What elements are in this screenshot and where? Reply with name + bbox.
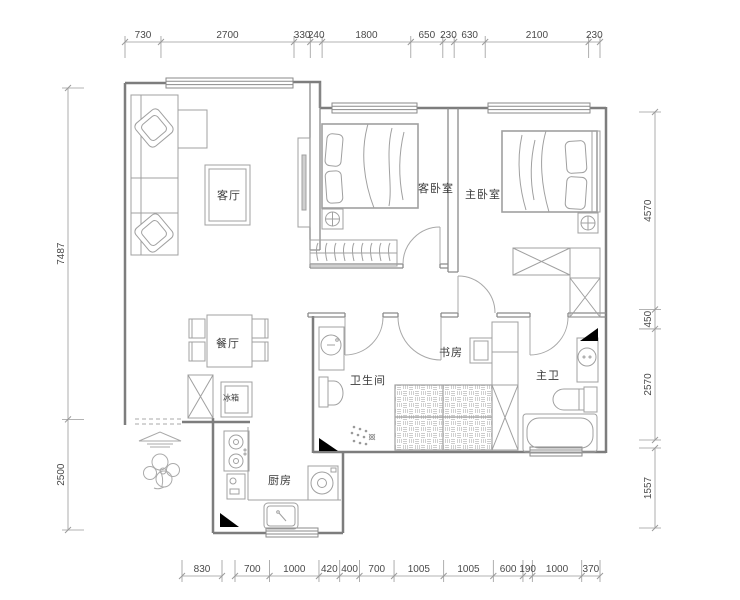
svg-text:230: 230 [440,30,457,41]
svg-text:730: 730 [135,30,152,41]
svg-text:2100: 2100 [526,30,549,41]
room-label-guest-bedroom: 客卧室 [418,180,454,196]
svg-text:230: 230 [586,30,603,41]
master-nightstand [578,213,598,233]
interior-walls [308,83,606,317]
washing-machine [308,466,338,500]
kitchen-sink [264,503,298,529]
master-bed [502,131,600,212]
entry-opening [135,419,182,424]
bathroom-door [345,317,383,355]
bathroom-vanity [319,327,344,370]
svg-text:1000: 1000 [283,564,306,575]
plant [144,454,180,489]
master-wardrobe [513,248,600,317]
svg-text:700: 700 [368,564,385,575]
guest-bed [322,124,418,208]
entry-canopy [139,432,181,447]
master-bath-door [530,317,568,355]
svg-text:630: 630 [461,30,478,41]
room-label-living-room: 客厅 [217,187,241,203]
svg-text:400: 400 [341,564,358,575]
guest-bedroom-window [332,103,417,113]
guest-bedroom-door [403,227,440,264]
study-cabinet [492,322,518,450]
toilet [319,377,343,407]
master-toilet [553,387,597,412]
floor-plan: 7302700330240180065023063021002308307001… [0,0,740,600]
exterior-walls [125,82,606,533]
svg-text:7487: 7487 [56,242,67,265]
svg-text:2500: 2500 [56,463,67,486]
room-label-bathroom: 卫生间 [350,372,386,388]
svg-text:370: 370 [583,564,600,575]
guest-nightstand [322,209,343,229]
master-bedroom-door [458,276,495,313]
svg-text:1800: 1800 [355,30,378,41]
room-label-kitchen: 厨房 [268,472,292,488]
tatami-bed [395,385,492,450]
svg-text:1005: 1005 [457,564,480,575]
room-label-study: 书房 [439,344,463,360]
dining-cabinet [188,375,213,418]
svg-text:2700: 2700 [216,30,239,41]
room-label-master-bedroom: 主卧室 [465,186,501,202]
windows [166,78,590,537]
svg-text:240: 240 [308,30,325,41]
room-label-master-bath: 主卫 [536,367,560,383]
sofa [131,95,207,255]
master-vanity [577,338,598,382]
svg-text:1557: 1557 [643,476,654,499]
study-desk [470,338,492,363]
living-room-window [166,78,293,88]
guest-wardrobe-hangers [310,240,397,266]
svg-text:1005: 1005 [408,564,431,575]
kitchen-counter [248,427,341,500]
shower-area [351,426,375,445]
svg-text:4570: 4570 [643,199,654,222]
study-door [398,317,441,360]
svg-text:830: 830 [194,564,211,575]
svg-text:190: 190 [519,564,536,575]
master-bedroom-window [488,103,590,113]
svg-text:700: 700 [244,564,261,575]
svg-text:420: 420 [321,564,338,575]
floor-plan-drawing: 7302700330240180065023063021002308307001… [0,0,740,600]
tv-cabinet [298,138,310,227]
kitchen-cabinet [227,474,245,499]
stove [224,431,249,471]
svg-text:650: 650 [418,30,435,41]
bathtub [523,414,597,452]
svg-text:600: 600 [500,564,517,575]
room-label-dining-room: 餐厅 [216,335,240,351]
svg-text:2570: 2570 [643,373,654,396]
room-label-fridge: 冰箱 [223,393,239,404]
svg-text:1000: 1000 [546,564,569,575]
svg-text:450: 450 [643,310,654,327]
